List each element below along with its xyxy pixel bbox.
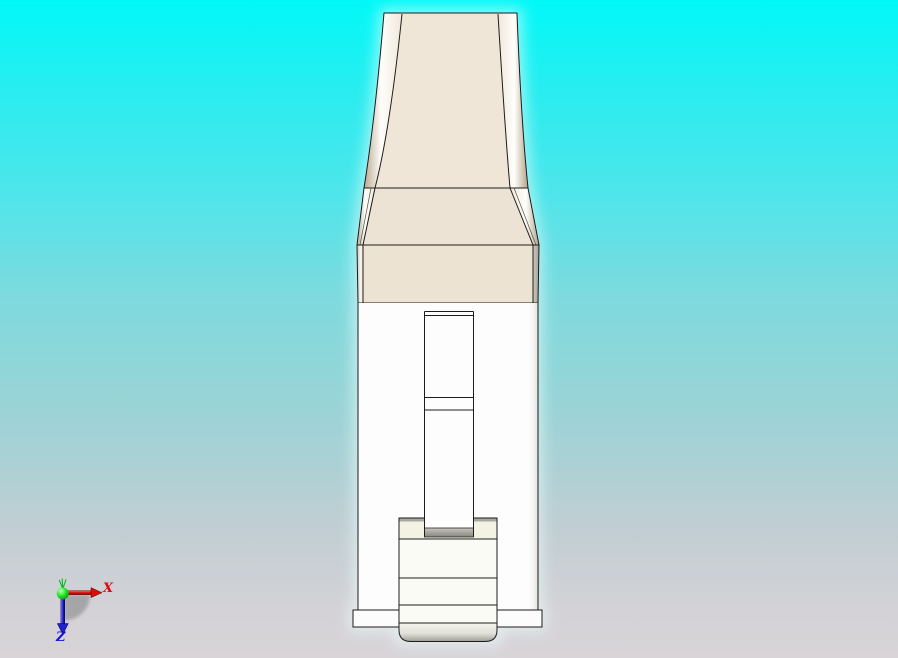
body-right-shading: [526, 303, 538, 610]
latch-bottom-shading: [399, 623, 497, 642]
y-axis-arrowhead: [59, 579, 66, 590]
cad-canvas[interactable]: X Z: [0, 0, 898, 658]
z-axis-label: Z: [55, 630, 66, 645]
band-face: [363, 245, 533, 303]
triad-shadow: [64, 595, 90, 621]
plunger-face: [425, 312, 474, 538]
shoulder-face: [357, 188, 539, 245]
model-connector-front: [353, 13, 542, 642]
plunger-tip-bar: [425, 528, 474, 537]
plunger: [425, 312, 474, 538]
x-axis-label: X: [102, 581, 114, 596]
cad-viewport[interactable]: X Z: [0, 0, 898, 658]
orientation-triad: X Z: [55, 579, 114, 646]
origin-sphere: [57, 588, 69, 600]
